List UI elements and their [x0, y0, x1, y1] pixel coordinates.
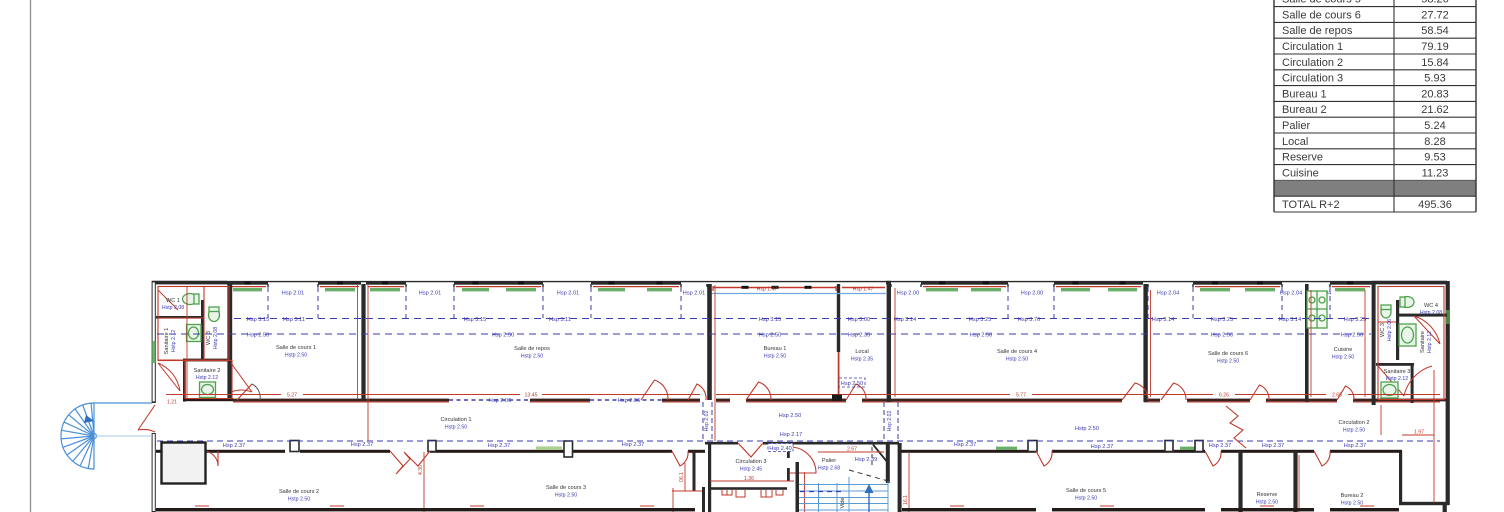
- svg-text:11.23: 11.23: [1422, 167, 1449, 179]
- svg-text:Hsp 2.17: Hsp 2.17: [780, 432, 802, 438]
- svg-text:Hsp 2.37: Hsp 2.37: [351, 442, 373, 448]
- svg-text:Hsp 2.40: Hsp 2.40: [769, 446, 791, 452]
- svg-text:8.28: 8.28: [1424, 136, 1445, 148]
- svg-text:Hstp 2.12: Hstp 2.12: [1386, 376, 1408, 382]
- svg-text:Hstp 2.50: Hstp 2.50: [1256, 500, 1278, 506]
- svg-text:Hsp 2.01: Hsp 2.01: [683, 291, 705, 297]
- svg-text:Salle de cours 6: Salle de cours 6: [1208, 351, 1248, 357]
- svg-text:Hsp 3.25: Hsp 3.25: [1211, 317, 1233, 323]
- svg-text:Hsp 2.01: Hsp 2.01: [282, 291, 304, 297]
- svg-text:Hstp 2.50: Hstp 2.50: [555, 493, 577, 499]
- svg-text:Hsp 2.00: Hsp 2.00: [897, 291, 919, 297]
- svg-text:Hsp 1.47: Hsp 1.47: [853, 287, 874, 293]
- svg-text:Hsp 2.37: Hsp 2.37: [1209, 443, 1231, 449]
- svg-text:Palier: Palier: [1282, 120, 1310, 132]
- svg-text:Hsp 2.01: Hsp 2.01: [557, 291, 579, 297]
- svg-text:Hstp 2.68: Hstp 2.68: [818, 466, 840, 472]
- svg-text:Hstp 2.06: Hstp 2.06: [1387, 319, 1393, 341]
- svg-text:Hsp 2.04: Hsp 2.04: [1157, 291, 1179, 297]
- svg-text:Bureau 2: Bureau 2: [1341, 493, 1364, 499]
- svg-text:Hsp 2.50: Hsp 2.50: [841, 381, 863, 387]
- svg-text:15.84: 15.84: [1421, 57, 1449, 69]
- svg-text:2.67: 2.67: [847, 447, 857, 453]
- svg-text:Salle de cours 5: Salle de cours 5: [1066, 488, 1106, 494]
- svg-text:5.24: 5.24: [1424, 120, 1445, 132]
- svg-text:Hstp 2.35: Hstp 2.35: [851, 357, 873, 363]
- svg-text:Local: Local: [1282, 136, 1308, 148]
- svg-text:Hsp 2.06: Hsp 2.06: [489, 398, 511, 404]
- svg-text:WC 3: WC 3: [1380, 323, 1386, 337]
- svg-text:Hstp 2.12: Hstp 2.12: [196, 375, 218, 381]
- svg-text:Hsp 3.15: Hsp 3.15: [247, 317, 269, 323]
- svg-text:06.1: 06.1: [679, 472, 685, 482]
- svg-text:Hsp 2.02: Hsp 2.02: [887, 411, 893, 432]
- svg-text:Hsp 3.15: Hsp 3.15: [464, 317, 486, 323]
- svg-text:Hsp 3.00: Hsp 3.00: [848, 317, 870, 323]
- svg-text:Salle de cours 2: Salle de cours 2: [279, 489, 319, 495]
- svg-text:Hsp 2.50: Hsp 2.50: [247, 333, 269, 339]
- svg-text:Hsp 2.06: Hsp 2.06: [618, 398, 640, 404]
- svg-text:Salle de cours 4: Salle de cours 4: [997, 349, 1037, 355]
- svg-text:Circulation 3: Circulation 3: [735, 459, 766, 465]
- svg-text:Sanitaire 3: Sanitaire 3: [1384, 369, 1411, 375]
- svg-text:Circulation 3: Circulation 3: [1282, 73, 1343, 85]
- svg-text:Cuisine: Cuisine: [1334, 347, 1353, 353]
- svg-text:Hstp 2.08: Hstp 2.08: [1420, 310, 1442, 316]
- svg-text:Hstp 2.50: Hstp 2.50: [1343, 428, 1365, 434]
- svg-text:Hsp 3.76: Hsp 3.76: [1018, 317, 1040, 323]
- svg-text:Hstp 2.12: Hstp 2.12: [171, 330, 177, 352]
- svg-text:Circulation 1: Circulation 1: [1282, 41, 1343, 53]
- svg-text:Hsp 2.50: Hsp 2.50: [759, 333, 781, 339]
- svg-text:Hstp 2.50: Hstp 2.50: [1341, 501, 1363, 507]
- svg-text:Hstp 2.50: Hstp 2.50: [1332, 355, 1354, 361]
- svg-text:5.93: 5.93: [1424, 73, 1445, 85]
- svg-text:Hsp 2.37: Hsp 2.37: [622, 442, 644, 448]
- svg-text:Hsp 2.50: Hsp 2.50: [1341, 333, 1363, 339]
- svg-text:Salle de repos: Salle de repos: [1282, 25, 1353, 37]
- svg-text:Hstp 2.50: Hstp 2.50: [1075, 426, 1099, 432]
- svg-text:TOTAL R+2: TOTAL R+2: [1282, 199, 1340, 211]
- svg-text:Hsp 3.11: Hsp 3.11: [549, 317, 571, 323]
- svg-text:58.26: 58.26: [1421, 0, 1449, 6]
- svg-text:Hsp 2.50: Hsp 2.50: [779, 413, 801, 419]
- svg-text:Hsp 2.50: Hsp 2.50: [492, 333, 514, 339]
- svg-text:Cuisine: Cuisine: [1282, 167, 1319, 179]
- svg-text:Sanitaire: Sanitaire: [1420, 331, 1426, 353]
- svg-text:Palier: Palier: [822, 458, 836, 464]
- svg-text:1.36: 1.36: [744, 476, 754, 482]
- svg-text:Hsp 2.37: Hsp 2.37: [488, 443, 510, 449]
- svg-text:Hsp 2.04: Hsp 2.04: [1280, 291, 1302, 297]
- svg-text:Sanitaire 2: Sanitaire 2: [194, 368, 221, 374]
- svg-text:Salle de cours 6: Salle de cours 6: [1282, 9, 1361, 21]
- svg-text:Hsp 3.25: Hsp 3.25: [1344, 317, 1366, 323]
- svg-text:Circulation 2: Circulation 2: [1282, 57, 1343, 69]
- svg-text:Hsp 3.14: Hsp 3.14: [1152, 317, 1174, 323]
- svg-text:13.45: 13.45: [525, 393, 538, 399]
- svg-text:Hstp 2.08: Hstp 2.08: [162, 305, 184, 311]
- svg-text:Hsp 2.01: Hsp 2.01: [419, 291, 441, 297]
- svg-text:Vide: Vide: [840, 497, 846, 508]
- svg-text:Hstp 2.50: Hstp 2.50: [1006, 357, 1028, 363]
- svg-text:58.54: 58.54: [1421, 25, 1449, 37]
- svg-text:495.36: 495.36: [1418, 199, 1452, 211]
- svg-text:Hstp 2.50: Hstp 2.50: [445, 425, 467, 431]
- svg-text:Hsp 3.11: Hsp 3.11: [283, 317, 305, 323]
- svg-text:20.83: 20.83: [1421, 88, 1449, 100]
- svg-text:Bureau 2: Bureau 2: [1282, 104, 1327, 116]
- svg-text:5.77: 5.77: [1016, 393, 1026, 399]
- svg-text:9.53: 9.53: [1424, 152, 1445, 164]
- svg-text:Hsp 2.37: Hsp 2.37: [223, 443, 245, 449]
- svg-text:Salle de cours 5: Salle de cours 5: [1282, 0, 1361, 6]
- svg-text:Hsp 2.50: Hsp 2.50: [1211, 333, 1233, 339]
- svg-text:Hstp 2.50: Hstp 2.50: [288, 497, 310, 503]
- svg-text:Hsp 2.39: Hsp 2.39: [855, 457, 877, 463]
- svg-text:WC 1: WC 1: [166, 298, 180, 304]
- svg-text:Hsp 2.02: Hsp 2.02: [704, 411, 710, 432]
- svg-text:Hsp 3.25: Hsp 3.25: [969, 317, 991, 323]
- svg-text:Reserve: Reserve: [1257, 492, 1278, 498]
- svg-text:4.30: 4.30: [418, 465, 424, 475]
- svg-text:16.1: 16.1: [903, 495, 909, 505]
- svg-text:WC 3: WC 3: [206, 331, 212, 345]
- svg-text:Bureau 1: Bureau 1: [1282, 88, 1327, 100]
- svg-text:Hstp 2.50: Hstp 2.50: [1217, 359, 1239, 365]
- svg-text:6.26: 6.26: [1219, 393, 1229, 399]
- svg-text:Hsp 2.37: Hsp 2.37: [1262, 443, 1284, 449]
- svg-text:Hsp 2.37: Hsp 2.37: [954, 442, 976, 448]
- svg-text:Hsp 2.37: Hsp 2.37: [1344, 443, 1366, 449]
- svg-text:Hsp 3.15: Hsp 3.15: [759, 317, 781, 323]
- svg-text:Hsp 2.50: Hsp 2.50: [970, 333, 992, 339]
- svg-text:Salle de cours 3: Salle de cours 3: [546, 485, 586, 491]
- svg-text:Hsp 2.35: Hsp 2.35: [848, 333, 870, 339]
- svg-text:21.62: 21.62: [1421, 104, 1449, 116]
- svg-text:Circulation 1: Circulation 1: [440, 417, 471, 423]
- svg-text:Hsp 1.47: Hsp 1.47: [757, 287, 778, 293]
- svg-text:Reserve: Reserve: [1282, 152, 1323, 164]
- svg-text:Hstp 2.08: Hstp 2.08: [213, 327, 219, 349]
- svg-text:1.97: 1.97: [1414, 430, 1424, 436]
- svg-text:Hsp 2.00: Hsp 2.00: [1021, 291, 1043, 297]
- svg-text:Hstp 2.50: Hstp 2.50: [285, 353, 307, 359]
- svg-text:Hstp 2.45: Hstp 2.45: [740, 467, 762, 473]
- svg-text:Hstp 2.50: Hstp 2.50: [521, 354, 543, 360]
- svg-text:Local: Local: [855, 349, 868, 355]
- svg-text:Sanitaire 1: Sanitaire 1: [164, 328, 170, 355]
- svg-text:Hstp 2.50: Hstp 2.50: [764, 354, 786, 360]
- svg-text:79.19: 79.19: [1421, 41, 1449, 53]
- svg-text:Hstp 2.50: Hstp 2.50: [1075, 496, 1097, 502]
- svg-text:Circulation 2: Circulation 2: [1338, 420, 1369, 426]
- svg-text:Hstp 2.12: Hstp 2.12: [1427, 331, 1433, 353]
- svg-text:Hsp 3.14: Hsp 3.14: [894, 317, 916, 323]
- svg-text:Salle de repos: Salle de repos: [514, 346, 550, 352]
- svg-text:1.21: 1.21: [167, 400, 177, 406]
- svg-text:Salle de cours 1: Salle de cours 1: [276, 345, 316, 351]
- svg-text:WC 4: WC 4: [1424, 303, 1438, 309]
- svg-text:Bureau 1: Bureau 1: [764, 346, 787, 352]
- svg-text:27.72: 27.72: [1421, 9, 1449, 21]
- svg-text:Hsp 2.37: Hsp 2.37: [1091, 444, 1113, 450]
- svg-text:5.27: 5.27: [287, 393, 297, 399]
